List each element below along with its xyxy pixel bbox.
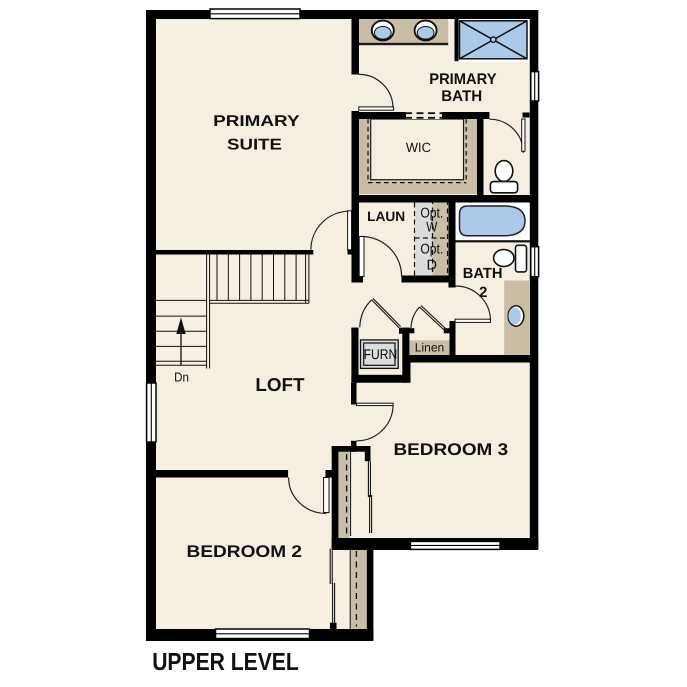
svg-text:BATH: BATH <box>463 266 503 282</box>
svg-text:Linen: Linen <box>415 341 445 355</box>
svg-text:PRIMARY: PRIMARY <box>429 71 497 88</box>
svg-text:UPPER LEVEL: UPPER LEVEL <box>152 649 299 676</box>
svg-text:2: 2 <box>479 285 487 301</box>
svg-text:PRIMARY: PRIMARY <box>213 113 300 130</box>
svg-text:W: W <box>426 220 438 236</box>
svg-text:Opt.: Opt. <box>420 242 443 258</box>
svg-text:WIC: WIC <box>406 140 431 155</box>
svg-text:LAUN: LAUN <box>367 209 405 224</box>
svg-text:BATH: BATH <box>441 88 482 105</box>
svg-text:D: D <box>427 258 438 274</box>
svg-text:FURN: FURN <box>364 346 398 362</box>
svg-text:LOFT: LOFT <box>255 374 305 395</box>
svg-text:BEDROOM 3: BEDROOM 3 <box>394 440 509 459</box>
svg-text:BEDROOM 2: BEDROOM 2 <box>187 542 303 561</box>
svg-text:Dn: Dn <box>174 370 189 385</box>
svg-text:SUITE: SUITE <box>227 137 282 154</box>
